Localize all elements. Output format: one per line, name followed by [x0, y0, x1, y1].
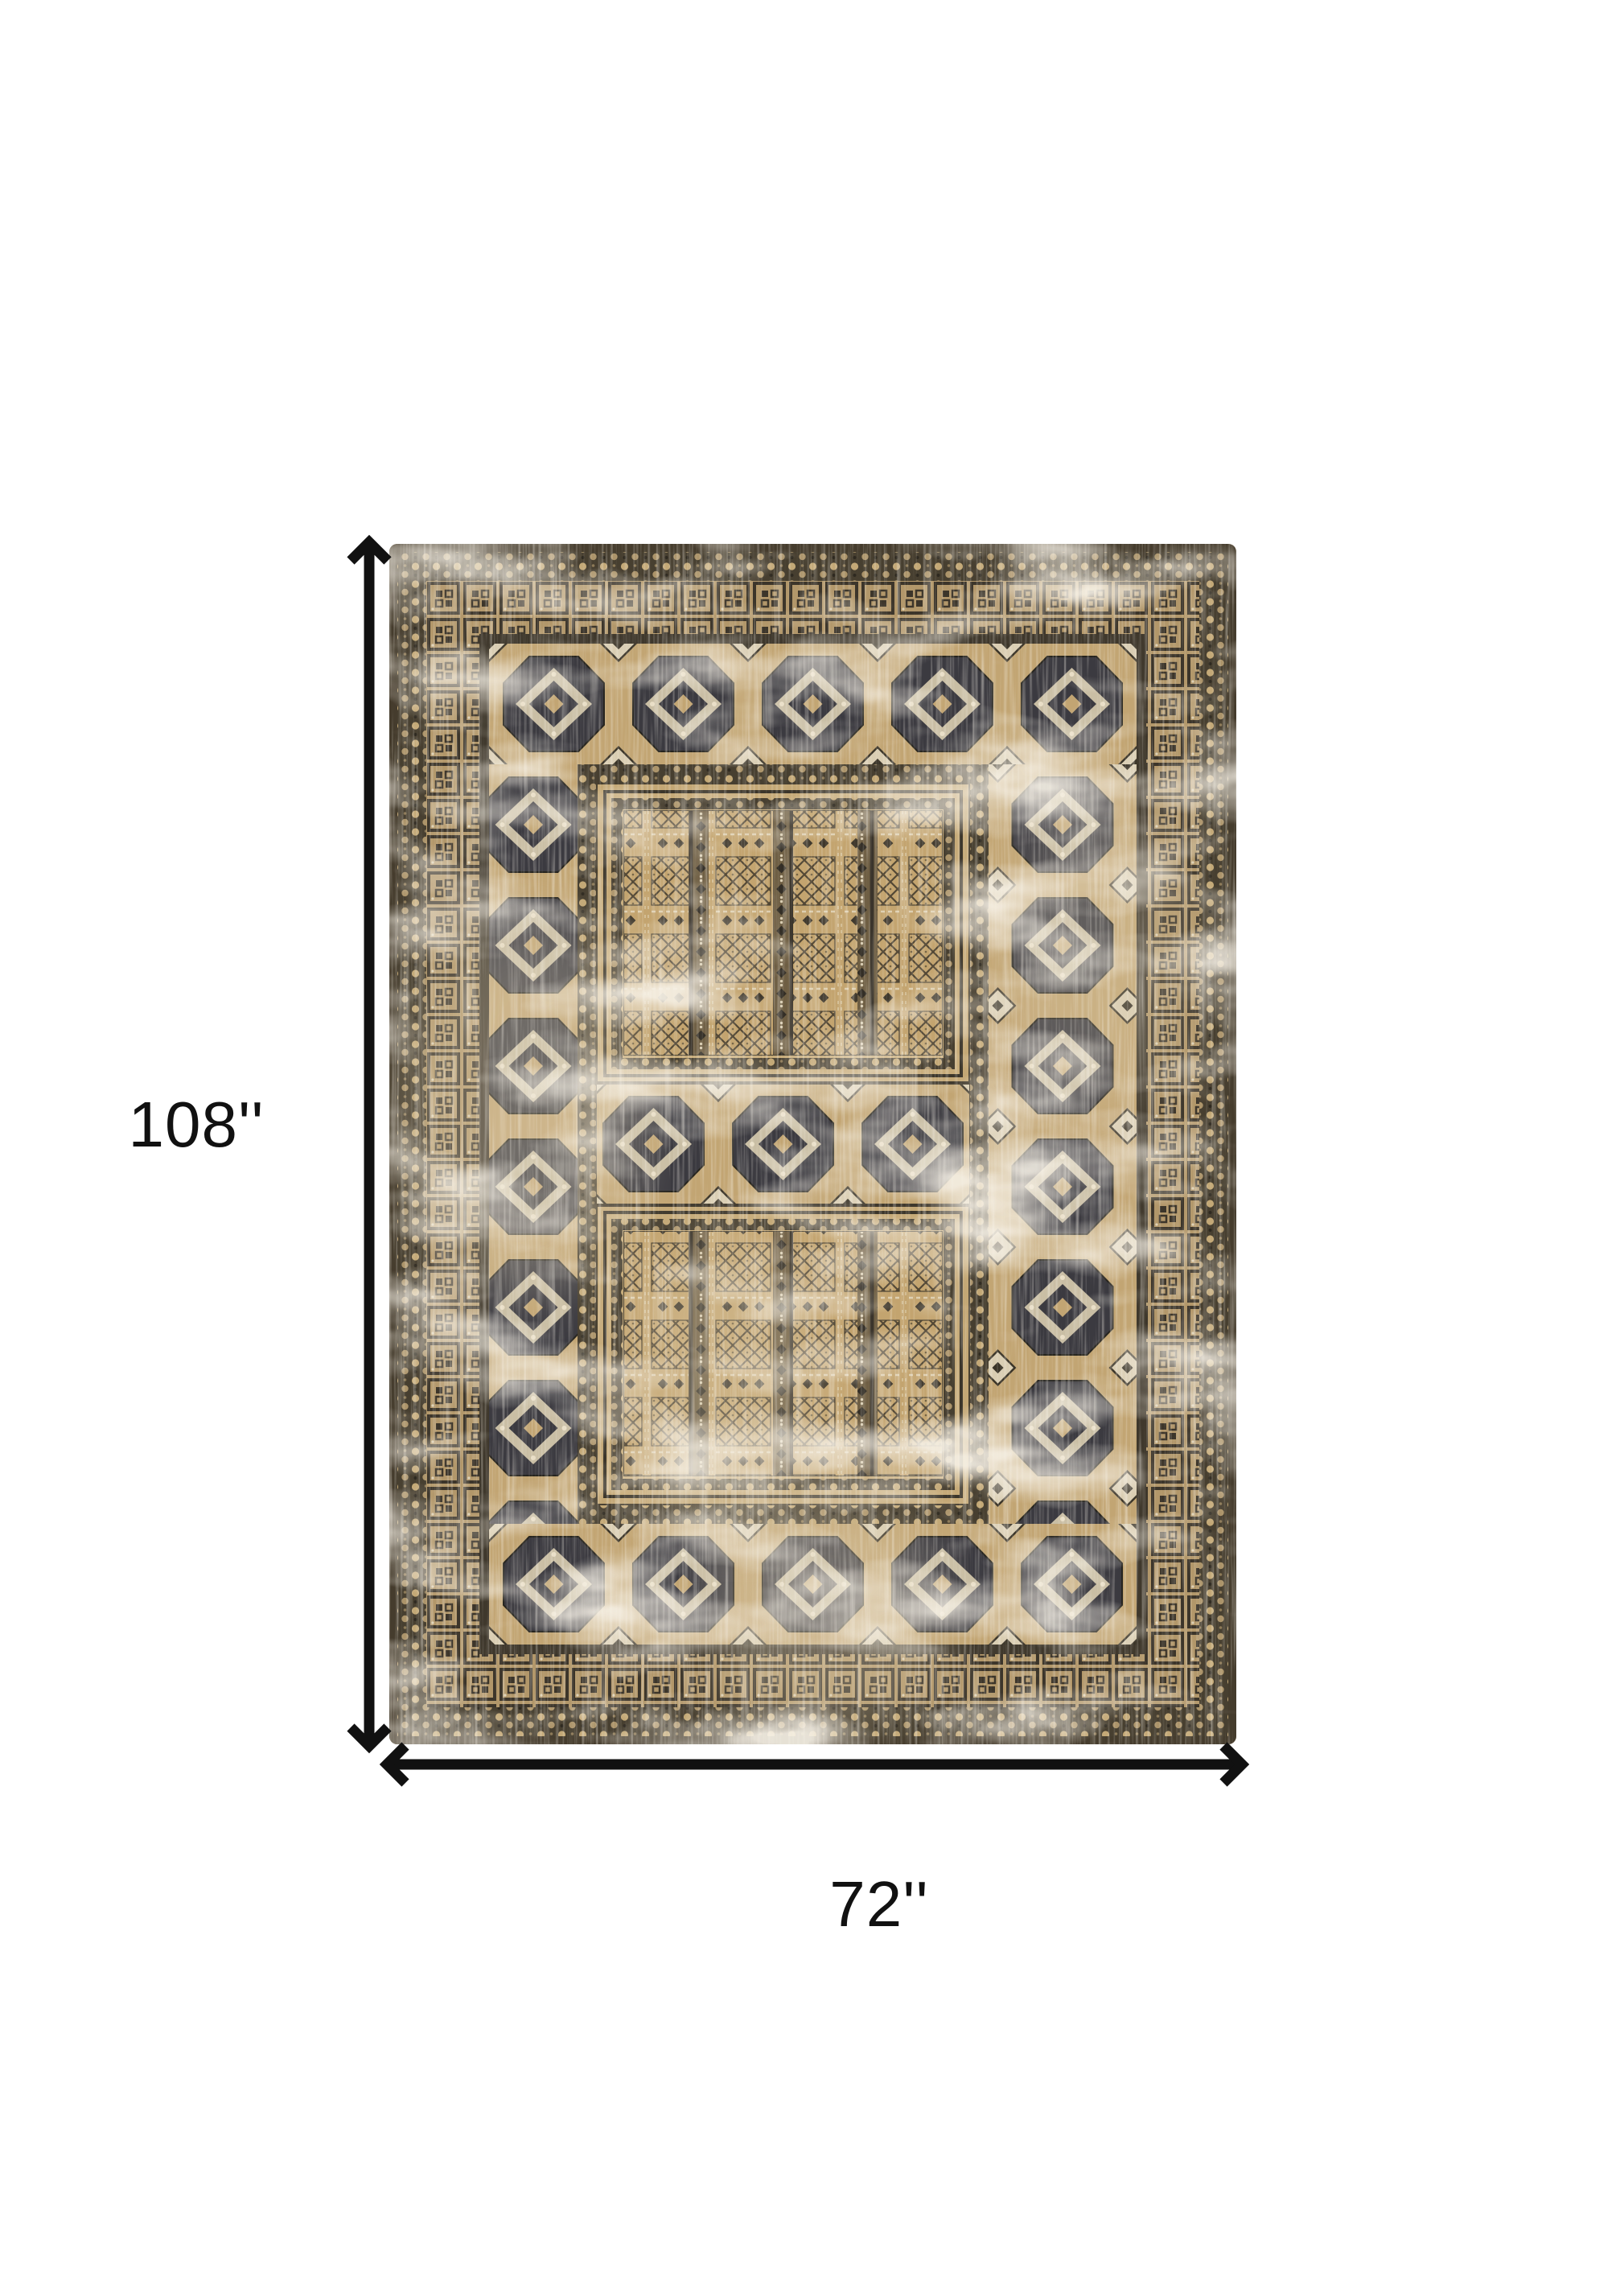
width-dimension-arrow: [387, 1746, 1242, 1783]
product-dimension-image: 108'' 72'': [0, 0, 1624, 2293]
rug-image: [389, 544, 1236, 1744]
height-dimension-arrow: [351, 542, 388, 1746]
rug-thread-streaks: [389, 544, 1236, 1744]
width-dimension-label: 72'': [829, 1872, 929, 1937]
height-dimension-label: 108'': [128, 1093, 264, 1157]
